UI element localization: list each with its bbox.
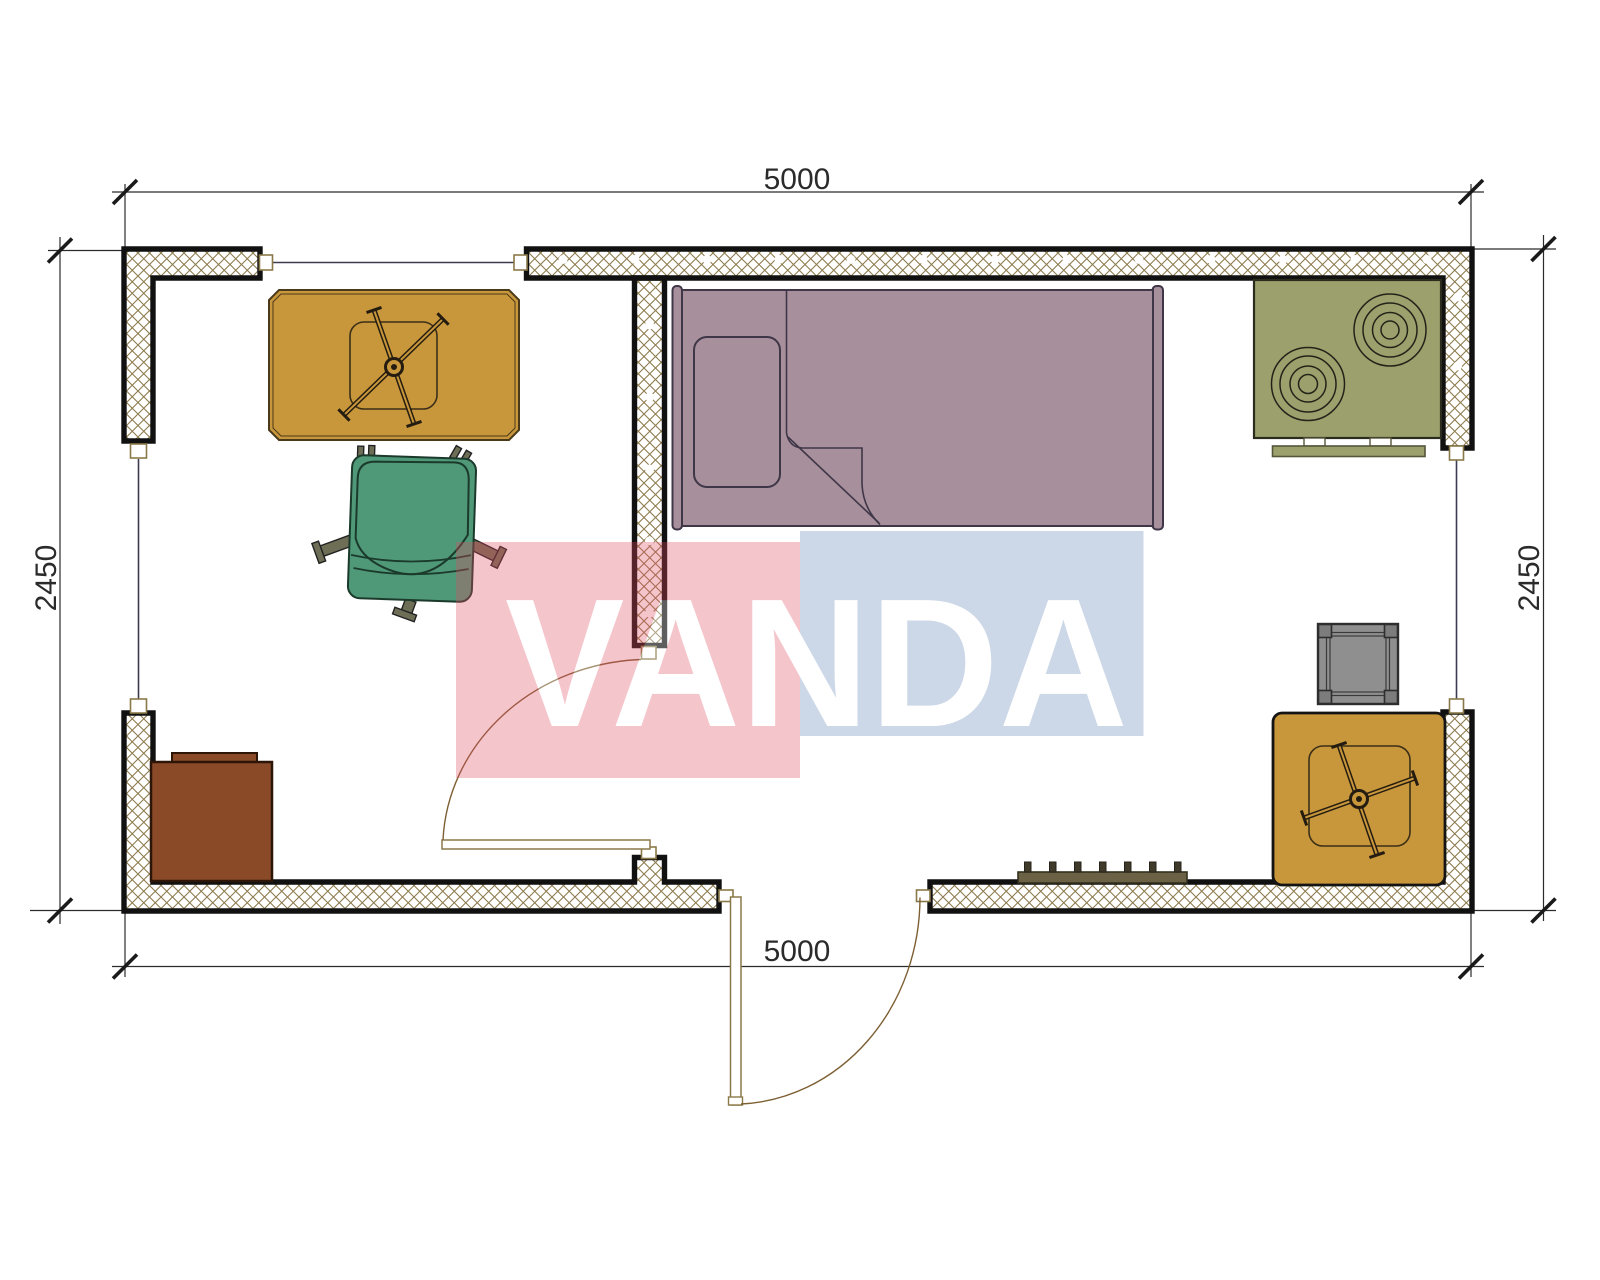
svg-text:5000: 5000 xyxy=(764,163,831,196)
svg-text:2450: 2450 xyxy=(1513,545,1546,612)
svg-text:VANDA: VANDA xyxy=(505,560,1128,765)
svg-text:2450: 2450 xyxy=(30,545,63,612)
svg-text:5000: 5000 xyxy=(764,935,831,968)
